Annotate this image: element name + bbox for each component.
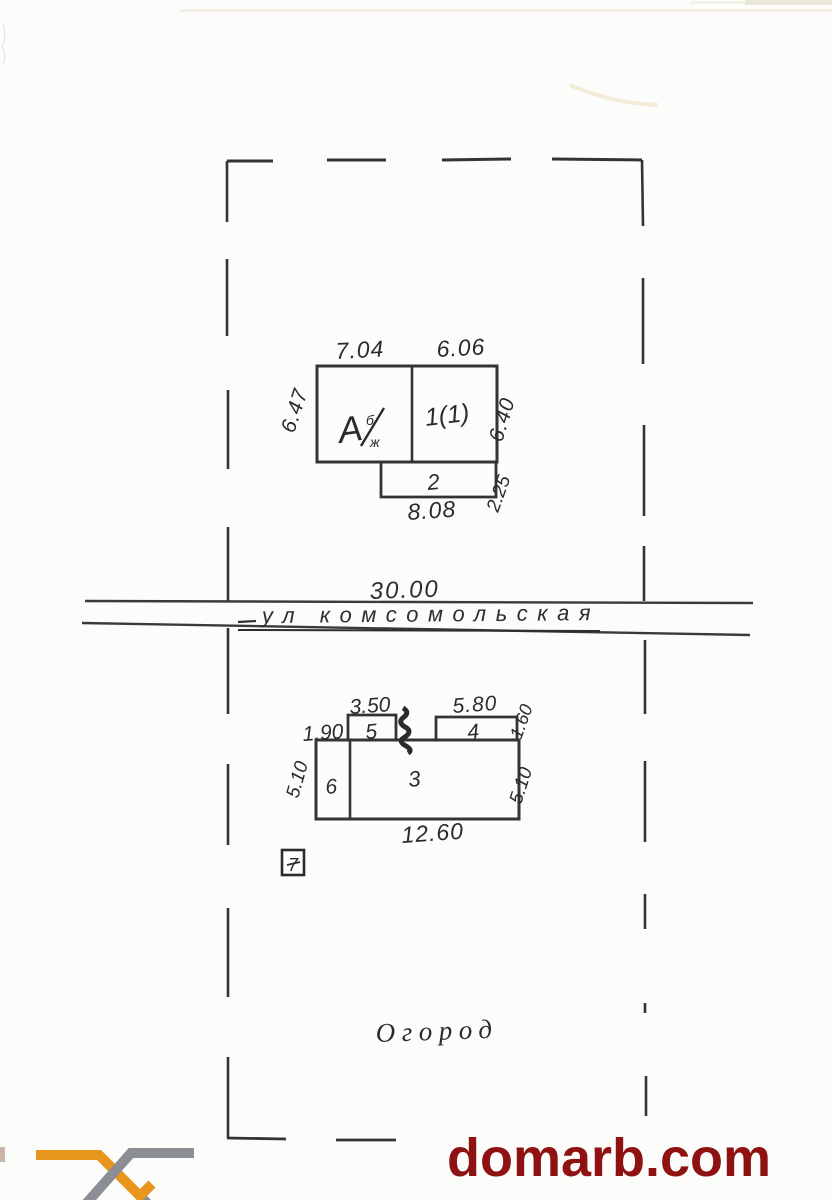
svg-text:6.06: 6.06	[436, 333, 486, 362]
svg-text:12.60: 12.60	[401, 818, 465, 848]
svg-text:5: 5	[364, 720, 378, 744]
svg-text:ж: ж	[369, 434, 381, 450]
svg-text:6: 6	[324, 775, 338, 799]
svg-text:ул комсомольская: ул комсомольская	[260, 600, 600, 628]
svg-text:2: 2	[425, 469, 440, 495]
svg-text:4: 4	[466, 720, 480, 744]
svg-text:7.04: 7.04	[335, 335, 385, 364]
svg-text:Огород: Огород	[375, 1014, 499, 1048]
svg-text:8.08: 8.08	[407, 496, 457, 525]
svg-text:1(1): 1(1)	[423, 399, 471, 432]
svg-text:3.50: 3.50	[349, 693, 392, 719]
svg-text:1.90: 1.90	[302, 720, 345, 746]
svg-text:domarb.com: domarb.com	[447, 1128, 771, 1188]
svg-text:5.80: 5.80	[452, 692, 498, 718]
